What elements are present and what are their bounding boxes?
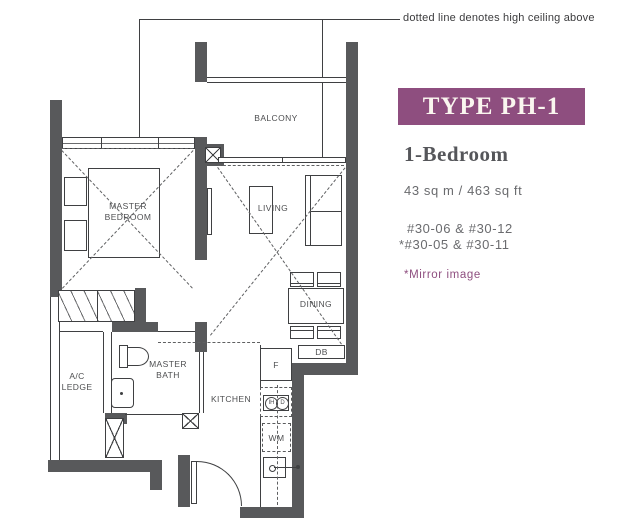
room-label-kitchen: KITCHEN <box>203 394 259 405</box>
label-line: A/C <box>69 371 84 381</box>
nightstand <box>64 220 87 251</box>
balcony-sliding-door <box>218 157 346 163</box>
foyer-threshold <box>125 414 182 415</box>
kitchen-sink <box>263 457 286 478</box>
mirror-note: *Mirror image <box>404 269 481 281</box>
high-ceiling-line <box>218 165 344 166</box>
high-ceiling-note: dotted line denotes high ceiling above <box>403 12 595 24</box>
unit-area: 43 sq m / 463 sq ft <box>404 183 522 198</box>
unit-type-title: 1-Bedroom <box>404 142 508 167</box>
wall <box>112 322 158 332</box>
db-label: DB <box>299 347 344 358</box>
wardrobe <box>58 290 135 322</box>
wall <box>346 42 358 363</box>
type-badge: TYPE PH-1 <box>398 88 585 125</box>
wall <box>150 460 162 490</box>
dining-chair <box>317 272 341 287</box>
wall <box>48 460 160 472</box>
room-label-dining: DINING <box>288 299 344 310</box>
label-line: LEDGE <box>62 382 93 392</box>
wall <box>178 455 190 507</box>
leader-line <box>139 19 400 20</box>
wall <box>292 375 304 518</box>
label-line: BEDROOM <box>105 212 152 222</box>
bath-door-threshold <box>158 331 195 332</box>
wall <box>50 100 62 297</box>
tv-panel <box>207 188 212 235</box>
fridge-label: F <box>261 360 291 371</box>
dining-chair <box>290 326 314 339</box>
column <box>105 418 124 458</box>
room-label-living: LIVING <box>245 203 301 214</box>
induction-hob: IH D <box>263 395 289 411</box>
distribution-board: DB <box>298 345 345 359</box>
floor-plan-page: dotted line denotes high ceiling above <box>0 0 630 525</box>
room-label-ac-ledge: A/C LEDGE <box>52 371 102 393</box>
wall <box>195 42 207 82</box>
label-line: MASTER <box>109 201 147 211</box>
high-ceiling-line <box>158 342 260 343</box>
room-label-master-bath: MASTER BATH <box>140 359 196 381</box>
nightstand <box>64 177 87 206</box>
leader-line <box>139 19 140 147</box>
wall <box>292 363 358 375</box>
high-ceiling-line <box>62 148 193 149</box>
ac-ledge-edge <box>60 331 103 332</box>
unit-numbers: #30-06 & #30-12 <box>407 221 513 236</box>
leader-line <box>322 19 323 162</box>
wall <box>135 288 146 326</box>
room-label-master-bedroom: MASTER BEDROOM <box>88 201 168 223</box>
entry-door-swing <box>197 461 242 506</box>
counter-centerline <box>277 385 278 505</box>
bathroom-sink <box>111 378 134 408</box>
fridge: F <box>260 348 292 381</box>
wall <box>195 322 207 352</box>
balcony-parapet <box>207 77 346 83</box>
column <box>182 413 199 429</box>
label-line: BATH <box>156 370 180 380</box>
wall <box>240 507 304 518</box>
label-line: MASTER <box>149 359 187 369</box>
room-label-balcony: BALCONY <box>240 113 312 124</box>
unit-numbers-mirrored: *#30-05 & #30-11 <box>399 237 510 252</box>
